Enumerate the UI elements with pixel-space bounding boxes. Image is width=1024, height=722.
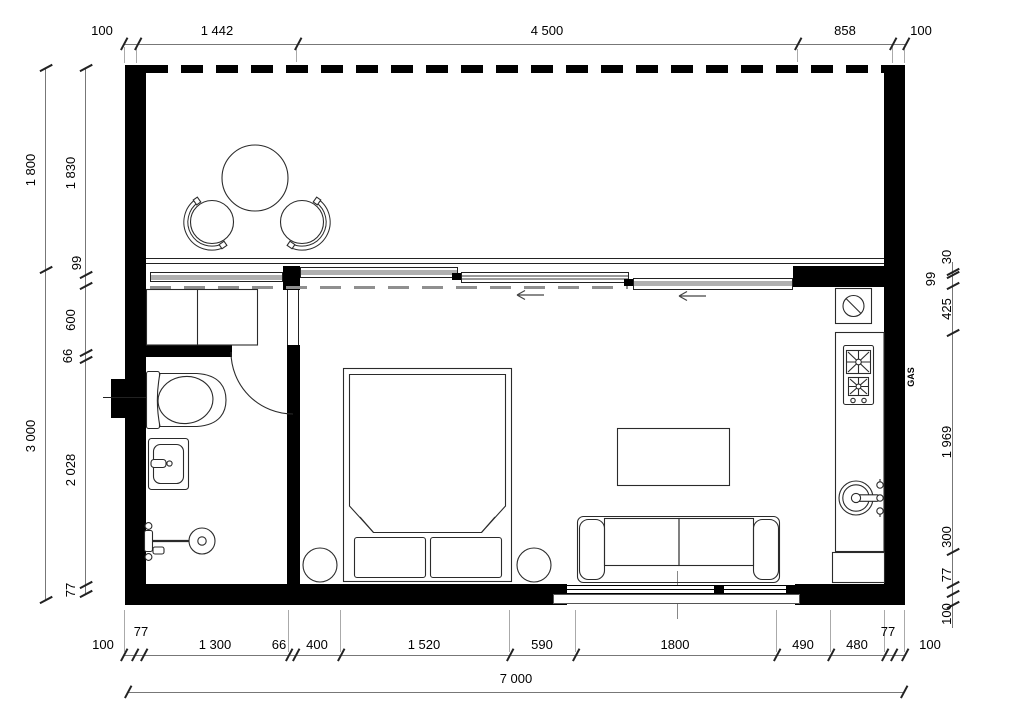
dim-label: 100 bbox=[73, 638, 133, 652]
dim-line-bottom bbox=[123, 655, 905, 656]
extension-line bbox=[509, 610, 510, 652]
terrace-chair-right bbox=[281, 197, 329, 249]
dim-label: 30 bbox=[940, 227, 954, 287]
gas-label: GAS bbox=[906, 367, 916, 387]
dim-label: 100 bbox=[891, 24, 951, 38]
dim-line-left-inner bbox=[85, 68, 86, 594]
extension-line bbox=[575, 610, 576, 652]
dim-label: 77 bbox=[64, 560, 78, 620]
extension-line bbox=[136, 47, 137, 63]
bathroom-door-swing[interactable] bbox=[231, 352, 293, 414]
bedside-stool-right bbox=[517, 548, 551, 582]
dim-label: 77 bbox=[111, 625, 171, 639]
dim-label: 1 442 bbox=[187, 24, 247, 38]
arrow-left-icon bbox=[517, 291, 544, 300]
dim-label: 3 000 bbox=[24, 406, 38, 466]
dim-label: 1 300 bbox=[185, 638, 245, 652]
extension-line bbox=[892, 47, 893, 63]
dim-label: 1 969 bbox=[940, 412, 954, 472]
shower-set bbox=[145, 523, 216, 561]
kitchen-lower-cabinet bbox=[833, 553, 885, 583]
floor-plan: GAS bbox=[0, 0, 1024, 722]
dim-label: 1 800 bbox=[24, 140, 38, 200]
dim-line-total bbox=[127, 692, 903, 693]
dim-label: 480 bbox=[827, 638, 887, 652]
arrow-left-icon bbox=[679, 292, 706, 301]
coffee-table bbox=[618, 429, 730, 486]
bathroom-sink bbox=[149, 439, 189, 490]
dim-label: 99 bbox=[70, 233, 84, 293]
dim-label: 858 bbox=[815, 24, 875, 38]
extension-line bbox=[124, 47, 125, 63]
dim-label: 400 bbox=[287, 638, 347, 652]
dim-label: 590 bbox=[512, 638, 572, 652]
dim-label: 4 500 bbox=[517, 24, 577, 38]
extension-line bbox=[904, 47, 905, 63]
shower-cabinet bbox=[147, 290, 258, 346]
dim-label: 100 bbox=[72, 24, 132, 38]
extension-line bbox=[296, 49, 297, 62]
dim-label: 1 520 bbox=[394, 638, 454, 652]
dim-label: 1 830 bbox=[64, 143, 78, 203]
extension-line bbox=[797, 49, 798, 62]
furniture-layer: GAS bbox=[0, 0, 1024, 722]
sofa bbox=[578, 517, 780, 583]
pillow bbox=[431, 538, 502, 578]
dim-label: 1800 bbox=[645, 638, 705, 652]
dim-label: 490 bbox=[773, 638, 833, 652]
dim-label: 77 bbox=[858, 625, 918, 639]
dim-label: 66 bbox=[61, 326, 75, 386]
bed bbox=[344, 369, 512, 582]
sliding-direction-arrows bbox=[517, 291, 706, 301]
kitchen-counter bbox=[836, 333, 885, 552]
dim-line-left-outer bbox=[45, 68, 46, 600]
pillow bbox=[355, 538, 426, 578]
terrace-table bbox=[222, 145, 288, 211]
terrace-chair-left bbox=[186, 197, 234, 249]
washing-machine bbox=[836, 289, 872, 324]
dim-line-top bbox=[123, 44, 905, 45]
dim-label-total: 7 000 bbox=[486, 672, 546, 686]
dim-label: 100 bbox=[940, 584, 954, 644]
bedside-stool-left bbox=[303, 548, 337, 582]
dim-label: 2 028 bbox=[64, 440, 78, 500]
toilet bbox=[147, 372, 227, 429]
dim-label: 100 bbox=[900, 638, 960, 652]
dim-label: 99 bbox=[924, 249, 938, 309]
dim-label: 425 bbox=[940, 279, 954, 339]
